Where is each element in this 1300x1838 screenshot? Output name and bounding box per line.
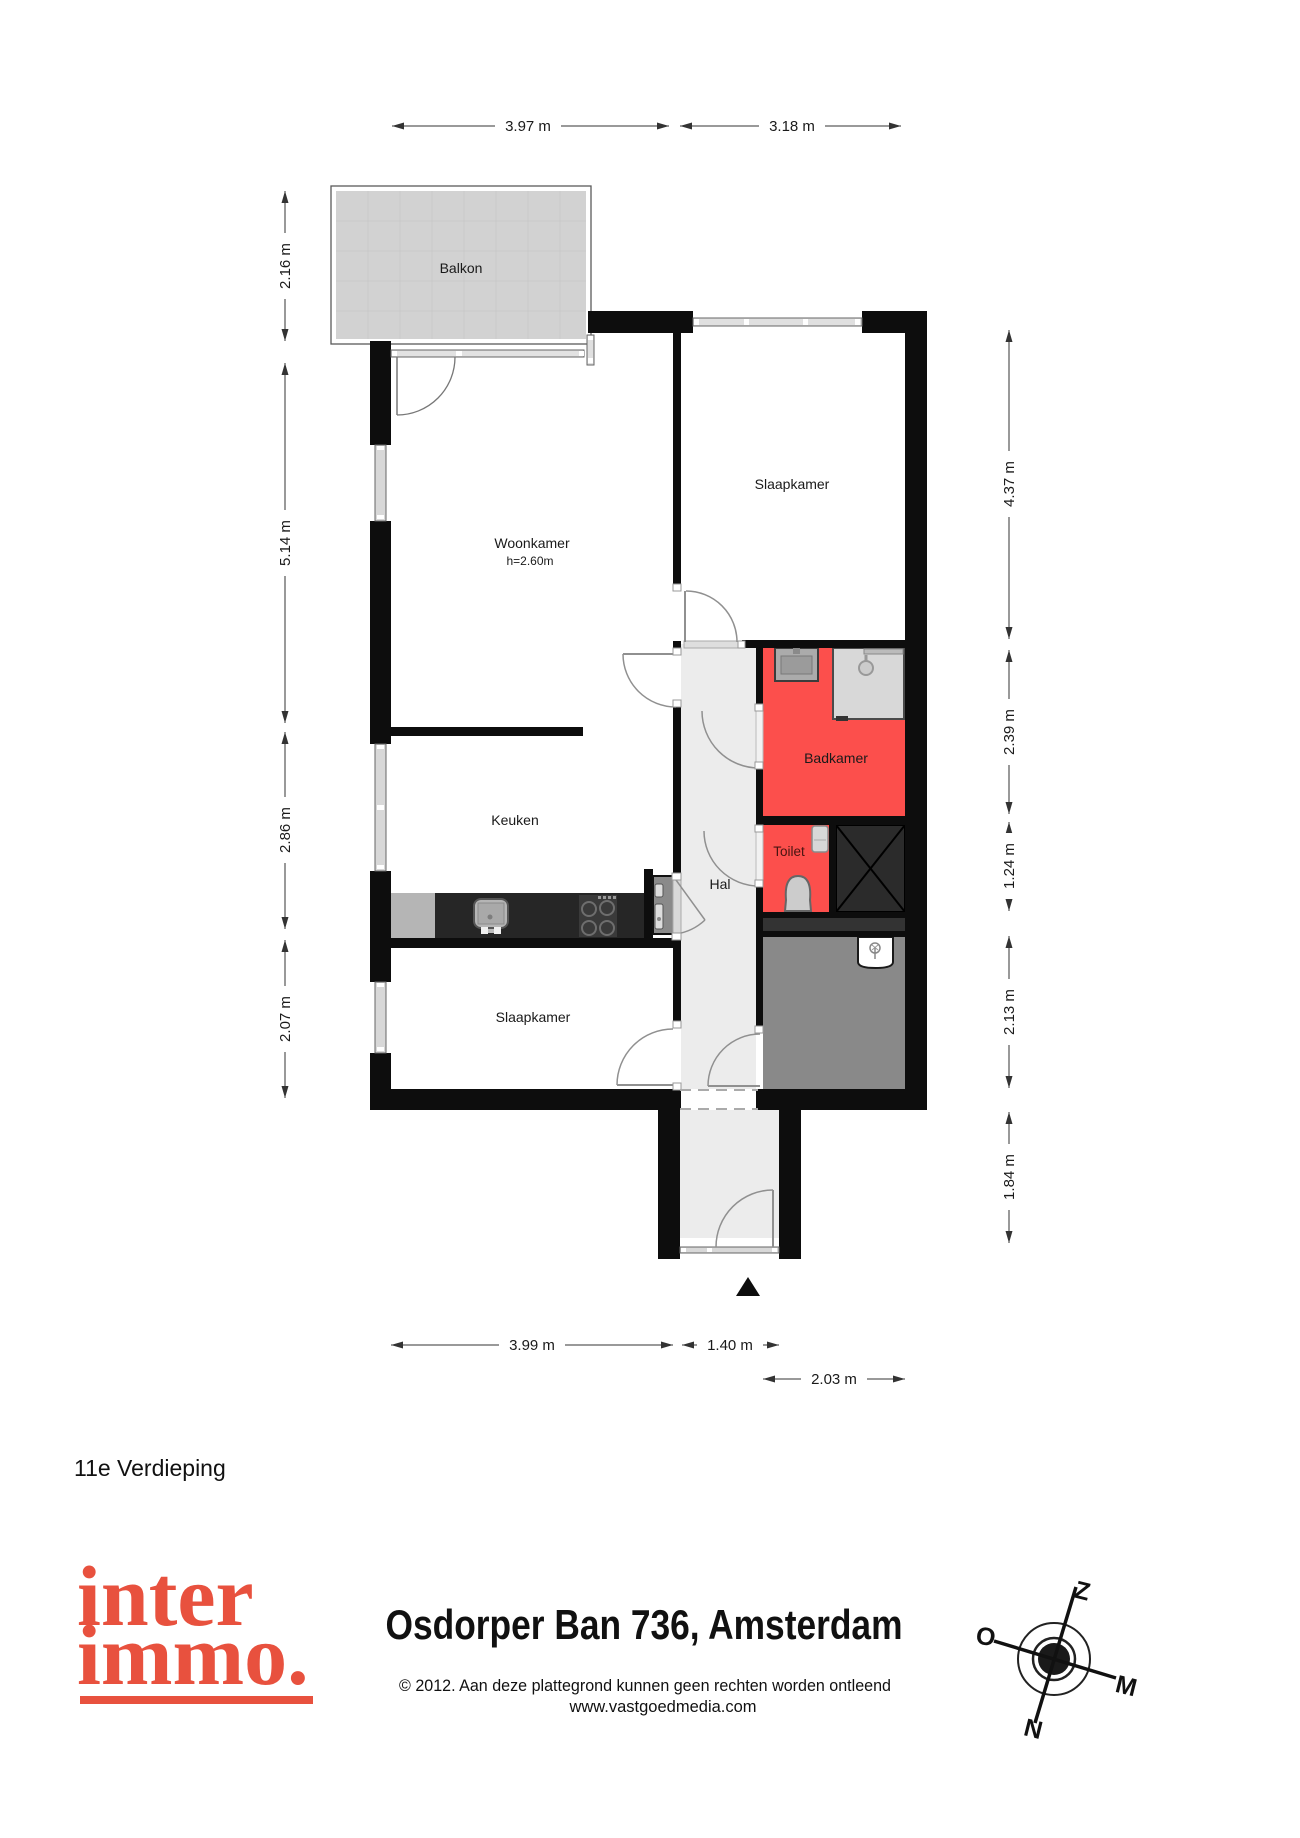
svg-text:1.24 m: 1.24 m (1001, 843, 1018, 889)
svg-text:5.14 m: 5.14 m (277, 520, 294, 566)
svg-text:Slaapkamer: Slaapkamer (496, 1009, 571, 1025)
svg-text:2.39 m: 2.39 m (1001, 709, 1018, 755)
svg-text:Toilet: Toilet (773, 844, 805, 859)
svg-text:Hal: Hal (709, 876, 730, 892)
svg-text:1.84 m: 1.84 m (1001, 1154, 1018, 1200)
svg-text:© 2012. Aan deze plattegrond k: © 2012. Aan deze plattegrond kunnen geen… (399, 1677, 891, 1695)
svg-text:1.40 m: 1.40 m (707, 1337, 753, 1354)
svg-text:3.97 m: 3.97 m (505, 118, 551, 135)
svg-text:3.99 m: 3.99 m (509, 1337, 555, 1354)
svg-text:Osdorper Ban 736, Amsterdam: Osdorper Ban 736, Amsterdam (386, 1601, 903, 1648)
svg-text:Balkon: Balkon (440, 260, 483, 276)
svg-text:11e Verdieping: 11e Verdieping (74, 1455, 226, 1481)
svg-text:2.07 m: 2.07 m (277, 996, 294, 1042)
svg-text:2.03 m: 2.03 m (811, 1371, 857, 1388)
svg-text:4.37 m: 4.37 m (1001, 461, 1018, 507)
svg-text:2.13 m: 2.13 m (1001, 989, 1018, 1035)
svg-text:Keuken: Keuken (491, 812, 538, 828)
svg-text:2.16 m: 2.16 m (277, 243, 294, 289)
svg-text:Slaapkamer: Slaapkamer (755, 476, 830, 492)
svg-text:h=2.60m: h=2.60m (506, 554, 553, 568)
svg-text:2.86 m: 2.86 m (277, 807, 294, 853)
svg-text:Badkamer: Badkamer (804, 750, 868, 766)
svg-text:Woonkamer: Woonkamer (494, 535, 570, 551)
svg-text:3.18 m: 3.18 m (769, 118, 815, 135)
svg-text:immo.: immo. (77, 1607, 309, 1703)
svg-text:www.vastgoedmedia.com: www.vastgoedmedia.com (568, 1698, 756, 1716)
